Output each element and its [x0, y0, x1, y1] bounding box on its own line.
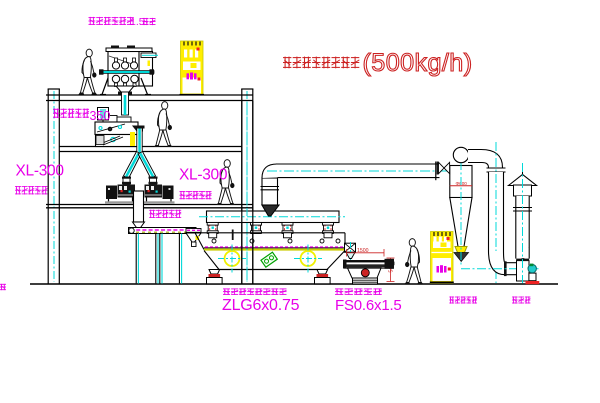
- svg-text:1.5: 1.5: [130, 16, 145, 28]
- svg-text:1500: 1500: [357, 248, 369, 254]
- svg-text:FS0.6x1.5: FS0.6x1.5: [335, 297, 402, 314]
- svg-text:XL-300: XL-300: [16, 163, 65, 180]
- svg-text:350: 350: [90, 109, 111, 123]
- svg-text:(500kg/h): (500kg/h): [363, 49, 473, 77]
- svg-text:ZLG6x0.75: ZLG6x0.75: [222, 297, 300, 314]
- svg-text:XL-300: XL-300: [179, 167, 228, 184]
